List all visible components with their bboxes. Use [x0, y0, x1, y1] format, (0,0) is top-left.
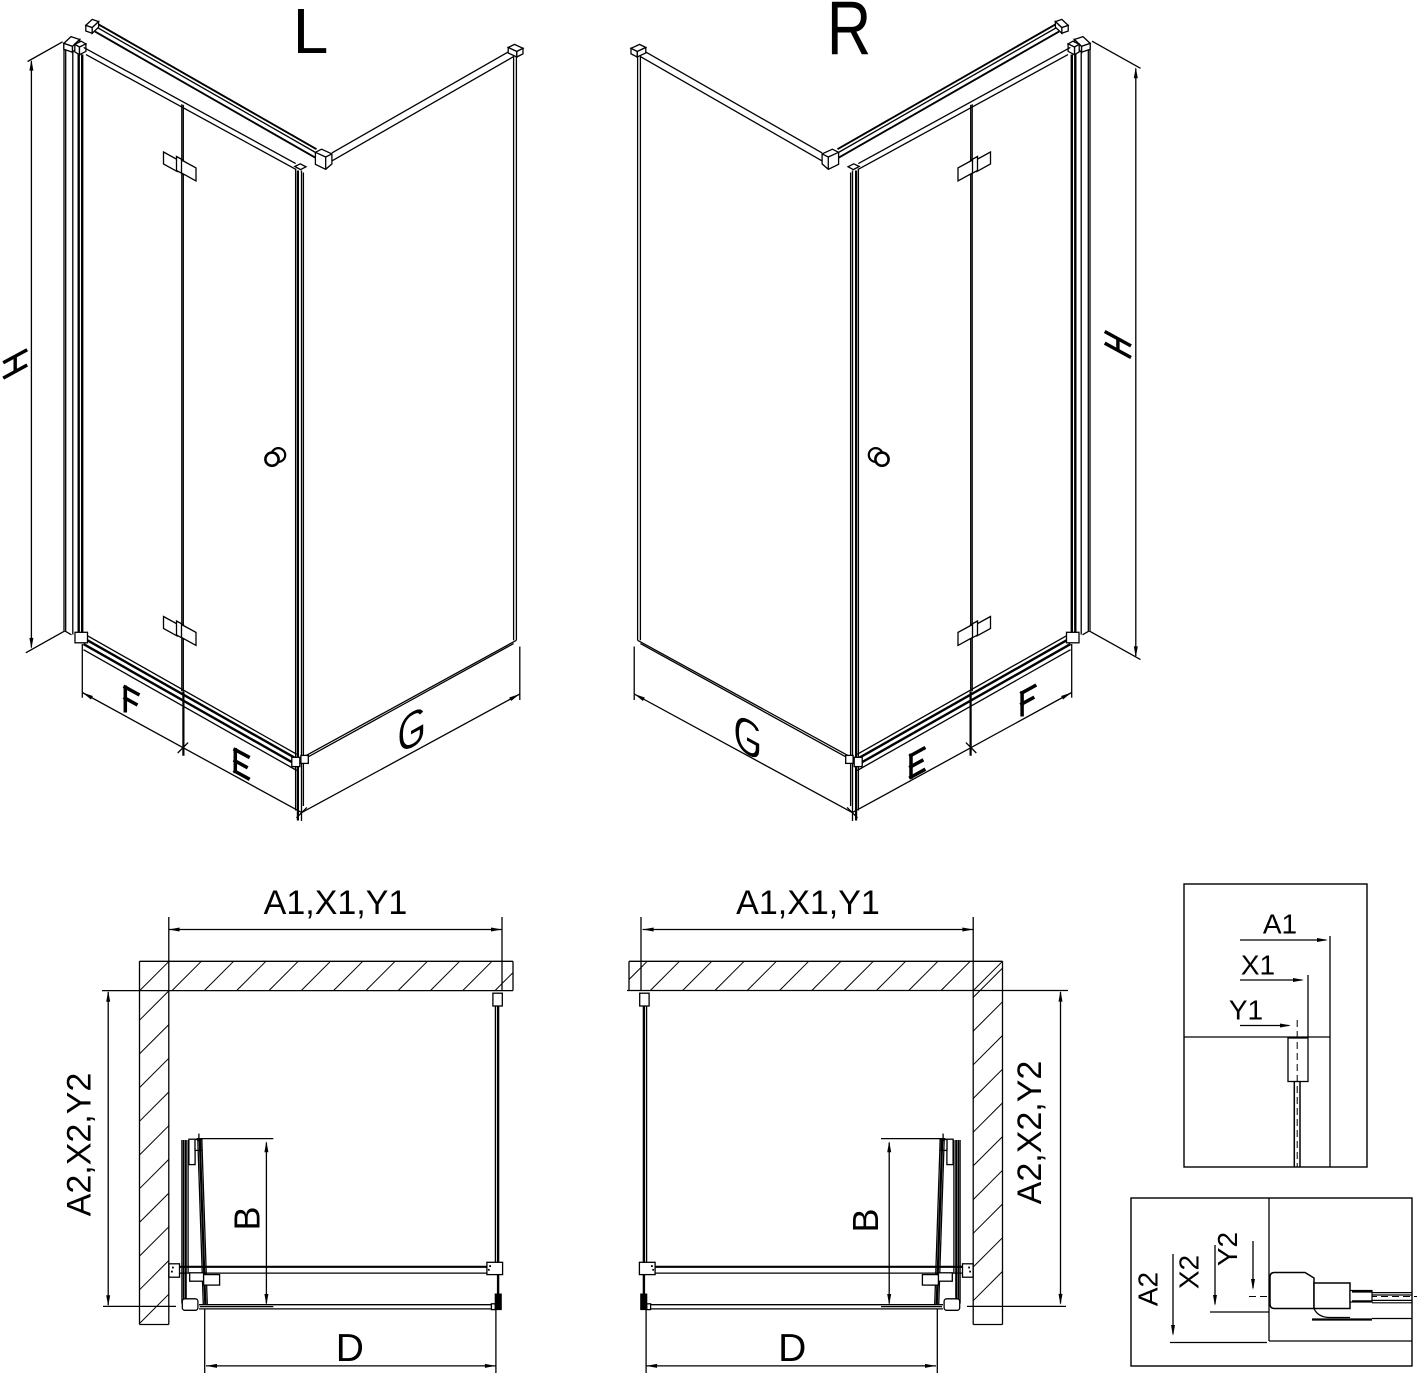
svg-text:D: D: [778, 1327, 806, 1370]
svg-text:Y2: Y2: [1212, 1232, 1243, 1266]
svg-text:A1: A1: [1263, 909, 1297, 940]
svg-text:Y1: Y1: [1229, 995, 1263, 1026]
svg-text:A2,X2,Y2: A2,X2,Y2: [1011, 1061, 1049, 1205]
svg-text:A2,X2,Y2: A2,X2,Y2: [61, 1073, 99, 1217]
svg-text:A1,X1,Y1: A1,X1,Y1: [264, 884, 408, 922]
svg-text:L: L: [293, 0, 329, 67]
svg-text:X1: X1: [1241, 950, 1275, 981]
svg-text:B: B: [845, 1208, 886, 1232]
svg-text:X2: X2: [1174, 1255, 1205, 1289]
svg-text:B: B: [227, 1206, 268, 1230]
svg-text:D: D: [336, 1327, 364, 1370]
svg-text:R: R: [827, 0, 871, 71]
svg-text:A1,X1,Y1: A1,X1,Y1: [736, 884, 880, 922]
svg-text:A2: A2: [1133, 1272, 1164, 1306]
